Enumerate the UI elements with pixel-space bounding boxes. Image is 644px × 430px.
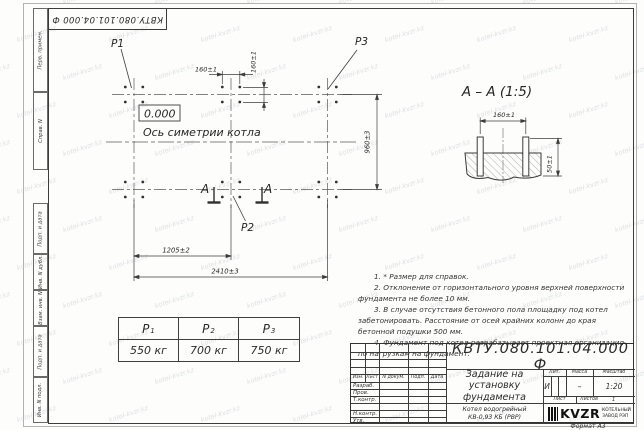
load-point-label-p1: P1 bbox=[111, 38, 124, 50]
col-list: Лист bbox=[365, 374, 379, 382]
note-1: 1. * Размер для справок. bbox=[358, 272, 632, 283]
section-letter-left: A bbox=[200, 182, 209, 196]
anchor-bolt-right bbox=[523, 137, 529, 176]
symmetry-axis-label: Ось симетрии котла bbox=[143, 126, 261, 139]
dim-section-protrusion: 50±1 bbox=[546, 155, 554, 173]
lit-label: Лит. bbox=[543, 369, 566, 376]
row-prov: Пров. bbox=[353, 390, 369, 396]
col-data: Дата bbox=[428, 374, 446, 382]
row-n-kontr: Н.контр. bbox=[353, 411, 377, 417]
load-table: P1 P2 P3 550 кг 700 кг 750 кг bbox=[118, 317, 300, 362]
section-title: A – A (1:5) bbox=[461, 84, 532, 100]
margin-cell-perv-primen: Перв. примен. bbox=[33, 8, 48, 92]
load-value-p1: 550 кг bbox=[119, 340, 179, 361]
section-view-a-a: A – A (1:5) 160±1 50±1 bbox=[435, 80, 575, 190]
margin-cell-podp-data-2: Подп. и дата bbox=[33, 326, 48, 377]
watermark-text: kotel-kvzr.kz bbox=[0, 366, 11, 386]
corner-stamp: КВТУ.080.101.04.000 Ф bbox=[48, 8, 167, 30]
dim-bolt-x: 160±1 bbox=[195, 66, 217, 74]
row-utv: Утв. bbox=[353, 418, 364, 424]
watermark-text: kotel-kvzr.kz bbox=[0, 214, 11, 234]
watermark-text: kotel-kvzr.kz bbox=[0, 138, 11, 158]
lit-value: И bbox=[543, 376, 551, 396]
margin-cell-inv-podl: Инв. N подл. bbox=[33, 377, 48, 423]
scale-label: Масштаб bbox=[593, 369, 635, 376]
load-col-p1: P1 bbox=[119, 318, 179, 340]
concrete-foundation bbox=[465, 153, 541, 180]
watermark-text: kotel-kvzr.kz bbox=[0, 0, 11, 6]
load-col-p3: P3 bbox=[239, 318, 299, 340]
sheets-label: Листов bbox=[580, 397, 598, 402]
mass-label: Масса bbox=[566, 369, 593, 376]
load-point-label-p3: P3 bbox=[355, 36, 368, 48]
product-name: Котел водогрейный КВ-0,93 КБ (РВР) bbox=[446, 403, 543, 424]
margin-cell-vzam-inv: Взам. инв. N bbox=[33, 290, 48, 326]
format-label: Формат А3 bbox=[548, 423, 628, 430]
company-logo: KVZR КОТЕЛЬНЫЙ ЗАВОД РЭП bbox=[544, 403, 635, 424]
kvzr-logo-text: KVZR bbox=[560, 406, 600, 421]
document-number: КВТУ.080.101.04.000 Ф bbox=[446, 344, 635, 369]
load-col-p2: P2 bbox=[179, 318, 239, 340]
margin-cell-sprav-n: Справ. N bbox=[33, 92, 48, 170]
margin-cell-podp-data-1: Подп. и дата bbox=[33, 203, 48, 254]
section-letter-right: A bbox=[263, 182, 272, 196]
row-razrab: Разраб. bbox=[353, 383, 374, 389]
plan-axis-lines bbox=[106, 78, 356, 208]
margin-cell-inv-dubl: Инв. N дубл. bbox=[33, 254, 48, 290]
kvzr-logo-icon bbox=[548, 407, 558, 421]
load-value-p3: 750 кг bbox=[239, 340, 299, 361]
watermark-text: kotel-kvzr.kz bbox=[0, 290, 11, 310]
title-block: Изм. Лист N докум. Подп. Дата Разраб. Пр… bbox=[350, 343, 634, 423]
scale-value: 1:20 bbox=[593, 376, 635, 396]
load-point-label-p2: P2 bbox=[241, 222, 254, 234]
col-izm: Изм. bbox=[351, 374, 365, 382]
col-podp: Подп. bbox=[408, 374, 428, 382]
foundation-plan-view: P1 P3 P2 0.000 Ось симетрии котла A A bbox=[90, 30, 390, 290]
mass-value: – bbox=[566, 376, 593, 396]
drawing-title: Задание на установку фундамента bbox=[446, 369, 543, 403]
note-3: 3. В случае отсутствия бетонного пола пл… bbox=[358, 305, 632, 338]
watermark-text: kotel-kvzr.kz bbox=[0, 62, 11, 82]
row-t-kontr: Т.контр. bbox=[353, 397, 376, 403]
col-n-dokum: N докум. bbox=[379, 374, 408, 382]
anchor-bolt-left bbox=[477, 137, 483, 176]
sheet-label: Лист bbox=[543, 396, 576, 403]
dim-col-half: 1205±2 bbox=[162, 247, 189, 255]
load-value-p2: 700 кг bbox=[179, 340, 239, 361]
level-mark: 0.000 bbox=[144, 108, 176, 121]
dim-section-bolt-spacing: 160±1 bbox=[493, 111, 515, 119]
dim-col-full: 2410±3 bbox=[211, 268, 238, 276]
note-2: 2. Отклонение от горизонтального уровня … bbox=[358, 283, 632, 305]
dim-row-span: 960±3 bbox=[364, 131, 372, 154]
drawing-sheet: kotel-kvzr.kzkotel-kvzr.kzkotel-kvzr.kzk… bbox=[0, 0, 644, 430]
dim-bolt-y: 160±1 bbox=[250, 51, 258, 73]
kvzr-tagline: КОТЕЛЬНЫЙ ЗАВОД РЭП bbox=[602, 408, 631, 419]
